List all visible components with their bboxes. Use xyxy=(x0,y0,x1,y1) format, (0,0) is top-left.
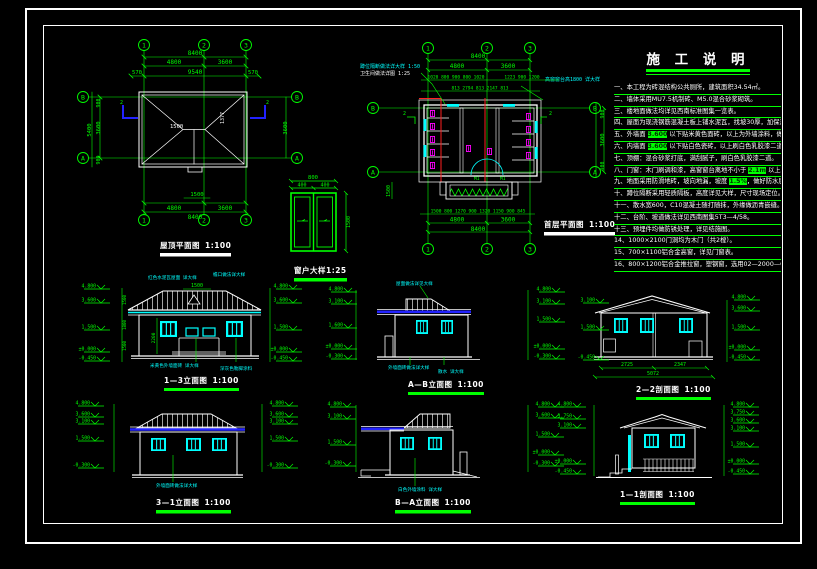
level-value: -0.450 xyxy=(555,469,572,475)
level-value: -0.300 xyxy=(73,463,90,469)
roof xyxy=(404,414,450,428)
roof-plan-drawing: 2 2 8400 4800 3600 570 9540 570 4800 360… xyxy=(87,50,291,221)
grid-bubble-label: 3 xyxy=(528,245,532,253)
section-label: 2 xyxy=(120,100,123,106)
level-value: 3.100 xyxy=(76,419,91,425)
window xyxy=(161,322,176,336)
window xyxy=(645,435,658,447)
level-triangle xyxy=(343,462,351,466)
title-text: 1—3立面图 xyxy=(164,376,207,385)
title-scale: 1:100 xyxy=(684,385,710,394)
level-triangle xyxy=(552,300,560,304)
eave-outline xyxy=(419,100,541,182)
section-1-1-title: 1—1剖面图1:100 xyxy=(620,489,695,505)
title-text: 1—1剖面图 xyxy=(620,490,663,499)
notes-title-underline-2 xyxy=(646,74,750,75)
dim-text: 3600 xyxy=(283,121,289,134)
level-value: 3.600 xyxy=(76,412,91,418)
level-triangle xyxy=(289,285,297,289)
highlighted-value: 3.600 xyxy=(648,131,668,138)
plan-window xyxy=(535,147,538,159)
partition-wall xyxy=(460,108,463,173)
dim-text: 1500 xyxy=(386,185,392,197)
door-label: M1 xyxy=(500,176,506,182)
dim-text: 1500 xyxy=(346,216,352,228)
level-triangle xyxy=(289,326,297,330)
door-label: M1 xyxy=(474,176,480,182)
level-value: ±0.000 xyxy=(79,347,96,353)
section-label: 2 xyxy=(266,100,269,106)
elevation-3-1: 外墙面砖做法详大样 xyxy=(114,404,262,489)
porch-step xyxy=(512,182,518,195)
level-triangle xyxy=(747,296,755,300)
title-text: B—A立面图 xyxy=(395,498,440,507)
title-scale: 1:100 xyxy=(212,376,238,385)
window xyxy=(152,439,165,450)
dim-text: 3600 xyxy=(501,63,516,70)
dim-text: 900 xyxy=(600,161,606,170)
elevation-A-B: 屋面做法详见大样 外墙面砖做法详大样 散水 详大样 xyxy=(356,280,528,375)
level-triangle xyxy=(97,299,105,303)
level-triangle xyxy=(343,403,351,407)
window xyxy=(401,438,413,449)
notes-title-underline xyxy=(646,69,750,72)
level-value: ±0.000 xyxy=(271,347,288,353)
level-value: ±0.000 xyxy=(533,450,550,456)
elevation-3-1-title: 3—1立面图1:100 xyxy=(156,497,231,511)
dim-text: 4800 xyxy=(450,217,465,224)
annotation: 卫生间做法详图 1:25 xyxy=(360,70,410,77)
annotation: 散水 详大样 xyxy=(438,368,464,375)
note-line: 八、门窗：木门刷调和漆，高窗窗台离地不小于 2.1m 以上。 xyxy=(614,166,781,178)
level-value: 1.500 xyxy=(537,317,552,323)
highlighted-value: 2.1m xyxy=(748,167,766,174)
roof-inner-dim: 1500 xyxy=(170,124,183,130)
window-sash xyxy=(295,197,311,247)
section-label: 2 xyxy=(403,111,406,117)
grid-bubble-label: 1 xyxy=(426,44,430,52)
note-line: 十二、台阶、坡道做法详见西南图集5T3—4/58。 xyxy=(614,213,781,225)
level-triangle xyxy=(747,326,755,330)
grid-bubble-label: 2 xyxy=(202,216,206,224)
level-value: 4.800 xyxy=(558,402,573,408)
level-value: 4.800 xyxy=(82,284,97,290)
level-value: -0.450 xyxy=(578,355,595,361)
level-triangle xyxy=(596,299,604,303)
plan-window xyxy=(447,104,459,107)
grid-bubble-label: 1 xyxy=(142,41,146,49)
level-value: 4.800 xyxy=(76,401,91,407)
dim-text: 3600 xyxy=(600,133,606,146)
note-line: 四、屋面为现浇钢筋混凝土板上铺水泥瓦，找坡30厚，加保温层。 xyxy=(614,118,781,130)
section-cut-line xyxy=(419,98,485,182)
dim-text: 4800 xyxy=(167,205,182,212)
note-line: 15、700×1100铝合金高窗，详见门窗表。 xyxy=(614,248,781,260)
wall xyxy=(632,428,695,468)
wall xyxy=(395,315,468,357)
level-triangle xyxy=(91,420,99,424)
note-line: 十、蹲位隔断采用轻质隔板，高度详见大样，尺寸现场定位。 xyxy=(614,189,781,201)
level-value: 3.100 xyxy=(581,298,596,304)
grid-bubble-label: B xyxy=(371,104,375,112)
elevation-A-B-title: A—B立面图1:100 xyxy=(408,379,484,395)
grid-bubble-label: A xyxy=(295,154,299,162)
level-triangle xyxy=(552,355,560,359)
dim-text: 1500 800 1270 900 1320 1150 900 845 xyxy=(431,209,526,215)
toilet-fixture xyxy=(430,162,434,168)
window xyxy=(615,319,627,332)
high-window xyxy=(203,328,215,336)
plan-window xyxy=(424,119,427,131)
dim-text: 3600 xyxy=(218,59,233,66)
dim-text: 4800 xyxy=(450,63,465,70)
level-triangle xyxy=(573,415,581,419)
column-section xyxy=(628,435,631,472)
note-line: 十一、散水宽600，C10混凝土随打随抹，外缘做沥青嵌缝。 xyxy=(614,201,781,213)
level-value: 1.500 xyxy=(274,325,289,331)
annotation: 外墙面砖做法详大样 xyxy=(156,482,198,489)
level-value: 1.500 xyxy=(82,325,97,331)
level-triangle xyxy=(573,460,581,464)
niche xyxy=(604,339,616,352)
title-text: 首层平面图 xyxy=(544,220,584,229)
window xyxy=(680,319,692,332)
level-triangle xyxy=(573,424,581,428)
dim-text: 1800 xyxy=(122,319,127,330)
level-triangle xyxy=(97,326,105,330)
dim-text: 900 xyxy=(96,98,102,107)
window-sash xyxy=(317,197,333,247)
level-value: -0.300 xyxy=(534,354,551,360)
annotation: 白色外墙涂料 详大样 xyxy=(398,486,443,493)
level-triangle xyxy=(746,411,754,415)
level-triangle xyxy=(97,348,105,352)
level-triangle xyxy=(344,355,352,359)
toilet-fixture xyxy=(466,145,470,151)
dim-text: 2200 xyxy=(151,332,157,343)
dim-text: 3600 xyxy=(501,217,516,224)
level-triangle xyxy=(91,413,99,417)
level-triangle xyxy=(746,427,754,431)
roof-plan-title: 屋顶平面图1:100 xyxy=(160,240,231,254)
level-value: -0.300 xyxy=(326,354,343,360)
level-triangle xyxy=(746,470,754,474)
dim-text: 900 xyxy=(600,109,606,118)
dim-text: 1500 xyxy=(191,283,203,289)
level-value: 1.500 xyxy=(536,432,551,438)
level-value: 4.800 xyxy=(537,287,552,293)
dim-text: 570 xyxy=(248,70,258,76)
note-line: 三、楼地面做法均详见西南标准图集一览表。 xyxy=(614,107,781,119)
note-line: 一、本工程为砖混结构公共厕所，建筑面积34.54㎡。 xyxy=(614,83,781,95)
level-triangle xyxy=(552,345,560,349)
dim-text: 3600 xyxy=(96,121,102,134)
highlighted-value: 3.600 xyxy=(648,143,668,150)
window xyxy=(442,321,453,333)
level-value: 4.800 xyxy=(732,295,747,301)
level-triangle xyxy=(289,299,297,303)
dim-text: 400 xyxy=(320,183,329,189)
elevation-B-A: 白色外墙涂料 详大样 xyxy=(356,405,528,493)
dim-text: 1500 xyxy=(190,192,203,198)
downpipe xyxy=(616,455,619,474)
level-triangle xyxy=(746,443,754,447)
cad-canvas[interactable]: 2 2 8400 4800 3600 570 9540 570 4800 360… xyxy=(0,0,817,569)
title-scale: 1:100 xyxy=(205,241,231,250)
level-triangle xyxy=(747,307,755,311)
level-value: 3.750 xyxy=(731,410,746,416)
dim-text: 4800 xyxy=(167,59,182,66)
construction-notes: 一、本工程为砖混结构公共厕所，建筑面积34.54㎡。二、墙体采用MU7.5机制砖… xyxy=(614,83,781,272)
dim-text: 570 xyxy=(132,70,142,76)
window xyxy=(227,322,242,336)
section-label: 2 xyxy=(549,111,552,117)
section-2-2: 2725 2347 5072 xyxy=(593,296,727,379)
level-triangle xyxy=(91,464,99,468)
level-value: ±0.000 xyxy=(729,345,746,351)
level-value: 3.600 xyxy=(270,412,285,418)
level-value: -0.300 xyxy=(533,461,550,467)
dim-text: 8400 xyxy=(188,50,203,57)
annotation: 米黄色外墙面砖 详大样 xyxy=(150,362,199,369)
annotation: 檐口做法详大样 xyxy=(213,271,246,278)
grid-bubble-label: 1 xyxy=(142,216,146,224)
level-value: -0.450 xyxy=(79,356,96,362)
dim-text: 1500 xyxy=(122,340,127,351)
dim-text: 5072 xyxy=(647,371,659,377)
title-scale: 1:100 xyxy=(445,498,471,507)
level-triangle xyxy=(285,420,293,424)
toilet-fixture xyxy=(430,149,434,155)
plan-window xyxy=(424,145,427,157)
stall-partitions xyxy=(427,118,534,160)
roof-notch xyxy=(188,167,202,172)
level-triangle xyxy=(91,437,99,441)
dim-text: 2347 xyxy=(674,362,686,368)
grid-bubble-label: A xyxy=(81,154,85,162)
wall xyxy=(390,430,453,475)
elevation-1-3-title: 1—3立面图1:100 xyxy=(164,375,239,391)
entry-steps xyxy=(598,469,632,477)
level-value: 3.100 xyxy=(731,426,746,432)
level-value: ±0.000 xyxy=(534,344,551,350)
level-value: -0.300 xyxy=(267,463,284,469)
level-value: 1.500 xyxy=(76,436,91,442)
level-triangle xyxy=(747,356,755,360)
note-line: 14、1000×2100门洞均为木门（共2樘）。 xyxy=(614,236,781,248)
level-value: 3.600 xyxy=(536,413,551,419)
window xyxy=(641,319,653,332)
annotation: 红色水泥瓦屋面 详大样 xyxy=(148,274,197,281)
level-value: 3.100 xyxy=(558,423,573,429)
level-triangle xyxy=(551,433,559,437)
level-triangle xyxy=(97,357,105,361)
level-triangle xyxy=(289,348,297,352)
level-value: 3.100 xyxy=(537,299,552,305)
grid-bubble-label: A xyxy=(371,168,375,176)
level-value: 3.600 xyxy=(274,298,289,304)
level-value: -0.450 xyxy=(729,355,746,361)
level-triangle xyxy=(343,415,351,419)
elevation-B-A-title: B—A立面图1:100 xyxy=(395,497,471,511)
level-triangle xyxy=(573,470,581,474)
toilet-fixture xyxy=(430,110,434,116)
level-triangle xyxy=(344,345,352,349)
section-1-1 xyxy=(594,405,724,478)
section-2-2-title: 2—2剖面图1:100 xyxy=(636,384,711,400)
level-triangle xyxy=(552,318,560,322)
grid-bubble-label: 3 xyxy=(244,216,248,224)
level-triangle xyxy=(344,324,352,328)
dim-text: 8400 xyxy=(471,226,486,233)
level-triangle xyxy=(97,285,105,289)
level-value: 1.500 xyxy=(732,325,747,331)
window xyxy=(429,438,441,449)
grid-bubble-label: A xyxy=(593,168,597,176)
dim-text: 1020 800 900 800 1020 xyxy=(428,75,485,81)
level-value: 4.800 xyxy=(329,287,344,293)
dim-text: 1223 900 1200 xyxy=(504,75,540,81)
toilet-fixture xyxy=(430,136,434,142)
grid-bubble-label: 2 xyxy=(485,44,489,52)
dim-text: 9540 xyxy=(188,69,203,76)
note-line: 五、外墙面 3.600 以下贴米黄色面砖，以上为外墙涂料，做法详见材料做法表。 xyxy=(614,130,781,142)
level-value: -0.450 xyxy=(728,469,745,475)
title-text: 2—2剖面图 xyxy=(636,385,679,394)
porch-step xyxy=(440,182,446,195)
roof-inner-dim: 1377 xyxy=(220,112,226,124)
level-triangle xyxy=(596,326,604,330)
level-value: ±0.000 xyxy=(326,344,343,350)
level-value: ±0.000 xyxy=(728,459,745,465)
level-triangle xyxy=(747,346,755,350)
level-value: 3.600 xyxy=(732,306,747,312)
level-triangle xyxy=(551,451,559,455)
level-triangle xyxy=(289,357,297,361)
title-scale: 1:100 xyxy=(589,220,615,229)
window xyxy=(671,435,684,447)
level-triangle xyxy=(746,460,754,464)
plan-window xyxy=(503,104,515,107)
level-triangle xyxy=(344,300,352,304)
note-line: 二、墙体采用MU7.5机制砖、M5.0混合砂浆砌筑。 xyxy=(614,95,781,107)
dim-text: 8400 xyxy=(188,214,203,221)
dim-text: 2725 xyxy=(621,362,633,368)
title-text: A—B立面图 xyxy=(408,380,453,389)
high-window xyxy=(186,328,198,336)
level-triangle xyxy=(343,441,351,445)
grid-bubble-label: B xyxy=(81,93,85,101)
level-triangle xyxy=(746,403,754,407)
title-scale: 1:100 xyxy=(668,490,694,499)
highlighted-value: 1.5% xyxy=(729,178,746,185)
door xyxy=(689,341,702,357)
level-value: ±0.000 xyxy=(555,459,572,465)
annotation: 外墙面砖做法详大样 xyxy=(388,364,430,371)
dim-text: 813 2794 813 2147 813 xyxy=(452,86,509,92)
floor-plan-drawing: 蹲位隔断做法详大样 1:50 卫生间做法详图 1:25 高窗窗台高1800 详大… xyxy=(360,53,606,243)
note-line: 六、内墙面 3.600 以下贴白色瓷砖，以上刷白色乳胶漆二道，阳角做护角。 xyxy=(614,142,781,154)
section-mark-left xyxy=(123,106,137,118)
section-mark-right xyxy=(251,106,265,118)
level-value: -0.450 xyxy=(271,356,288,362)
grid-bubble-label: 1 xyxy=(426,245,430,253)
title-scale: 1:100 xyxy=(458,380,484,389)
level-value: 4.800 xyxy=(536,402,551,408)
level-value: 3.750 xyxy=(558,414,573,420)
door xyxy=(460,452,467,475)
note-line: 16、800×1200铝合金推拉窗，塑钢窗，选用02—2000—CST—21。 xyxy=(614,260,781,272)
level-triangle xyxy=(285,437,293,441)
toilet-fixture xyxy=(430,123,434,129)
level-triangle xyxy=(285,413,293,417)
title-text: 屋顶平面图 xyxy=(160,241,200,250)
dim-text: 1500 xyxy=(122,294,127,305)
level-value: 4.800 xyxy=(731,402,746,408)
roof-hip-lines xyxy=(142,95,244,164)
elevation-1-3: 1500 2200 1500 1800 1500 红色水泥瓦屋面 详大样 檐口做… xyxy=(122,271,270,372)
level-triangle xyxy=(573,403,581,407)
title-text: 窗户大样1:25 xyxy=(294,266,347,275)
note-line: 七、顶棚：混合砂浆打底，满刮腻子，刷白色乳胶漆二道。 xyxy=(614,154,781,166)
level-value: 3.600 xyxy=(731,418,746,424)
toilet-fixture xyxy=(487,148,491,154)
grid-bubble-label: 3 xyxy=(244,41,248,49)
window xyxy=(417,321,428,333)
plan-window xyxy=(535,121,538,133)
grid-bubble-label: 3 xyxy=(528,44,532,52)
grid-bubble-label: B xyxy=(593,104,597,112)
level-value: 4.800 xyxy=(274,284,289,290)
notes-title: 施 工 说 明 xyxy=(640,48,756,68)
level-value: 1.500 xyxy=(581,325,596,331)
dim-text: 8400 xyxy=(471,53,486,60)
window-detail-drawing: 800 400 400 1500 xyxy=(289,175,352,253)
roof xyxy=(137,414,236,428)
level-value: 3.100 xyxy=(328,414,343,420)
level-value: 1.500 xyxy=(731,442,746,448)
porch-canopy xyxy=(172,338,226,356)
level-value: -0.300 xyxy=(325,461,342,467)
porch-railing xyxy=(643,459,694,472)
level-value: 1.500 xyxy=(270,436,285,442)
door xyxy=(385,336,393,357)
annotation: 屋面做法详见大样 xyxy=(396,280,433,287)
annotation: 蹲位隔断做法详大样 1:50 xyxy=(360,63,420,70)
grid-bubble-label: 2 xyxy=(202,41,206,49)
grid-bubble-label: B xyxy=(295,93,299,101)
dim-text: 400 xyxy=(297,183,306,189)
window xyxy=(213,439,226,450)
title-scale: 1:100 xyxy=(204,498,230,507)
level-triangle xyxy=(285,402,293,406)
level-triangle xyxy=(344,288,352,292)
level-value: 3.600 xyxy=(82,298,97,304)
note-line: 十三、预埋件均做防锈处理，详见结施图。 xyxy=(614,225,781,237)
level-triangle xyxy=(91,402,99,406)
window-detail-title: 窗户大样1:25 xyxy=(294,265,347,279)
note-line: 九、地面采用防滑地砖，坡向地漏，坡度 1.5%，做好防水层。 xyxy=(614,177,781,189)
dim-text: 800 xyxy=(308,175,318,181)
level-triangle xyxy=(746,419,754,423)
level-value: 3.100 xyxy=(329,299,344,305)
floor-plan-title: 首层平面图1:100 xyxy=(544,219,615,233)
level-value: 4.800 xyxy=(328,402,343,408)
level-value: 1.500 xyxy=(328,440,343,446)
porch-hatch xyxy=(450,185,508,196)
level-value: 1.600 xyxy=(329,323,344,329)
annotation: 深灰色勒脚涂料 xyxy=(220,365,253,372)
